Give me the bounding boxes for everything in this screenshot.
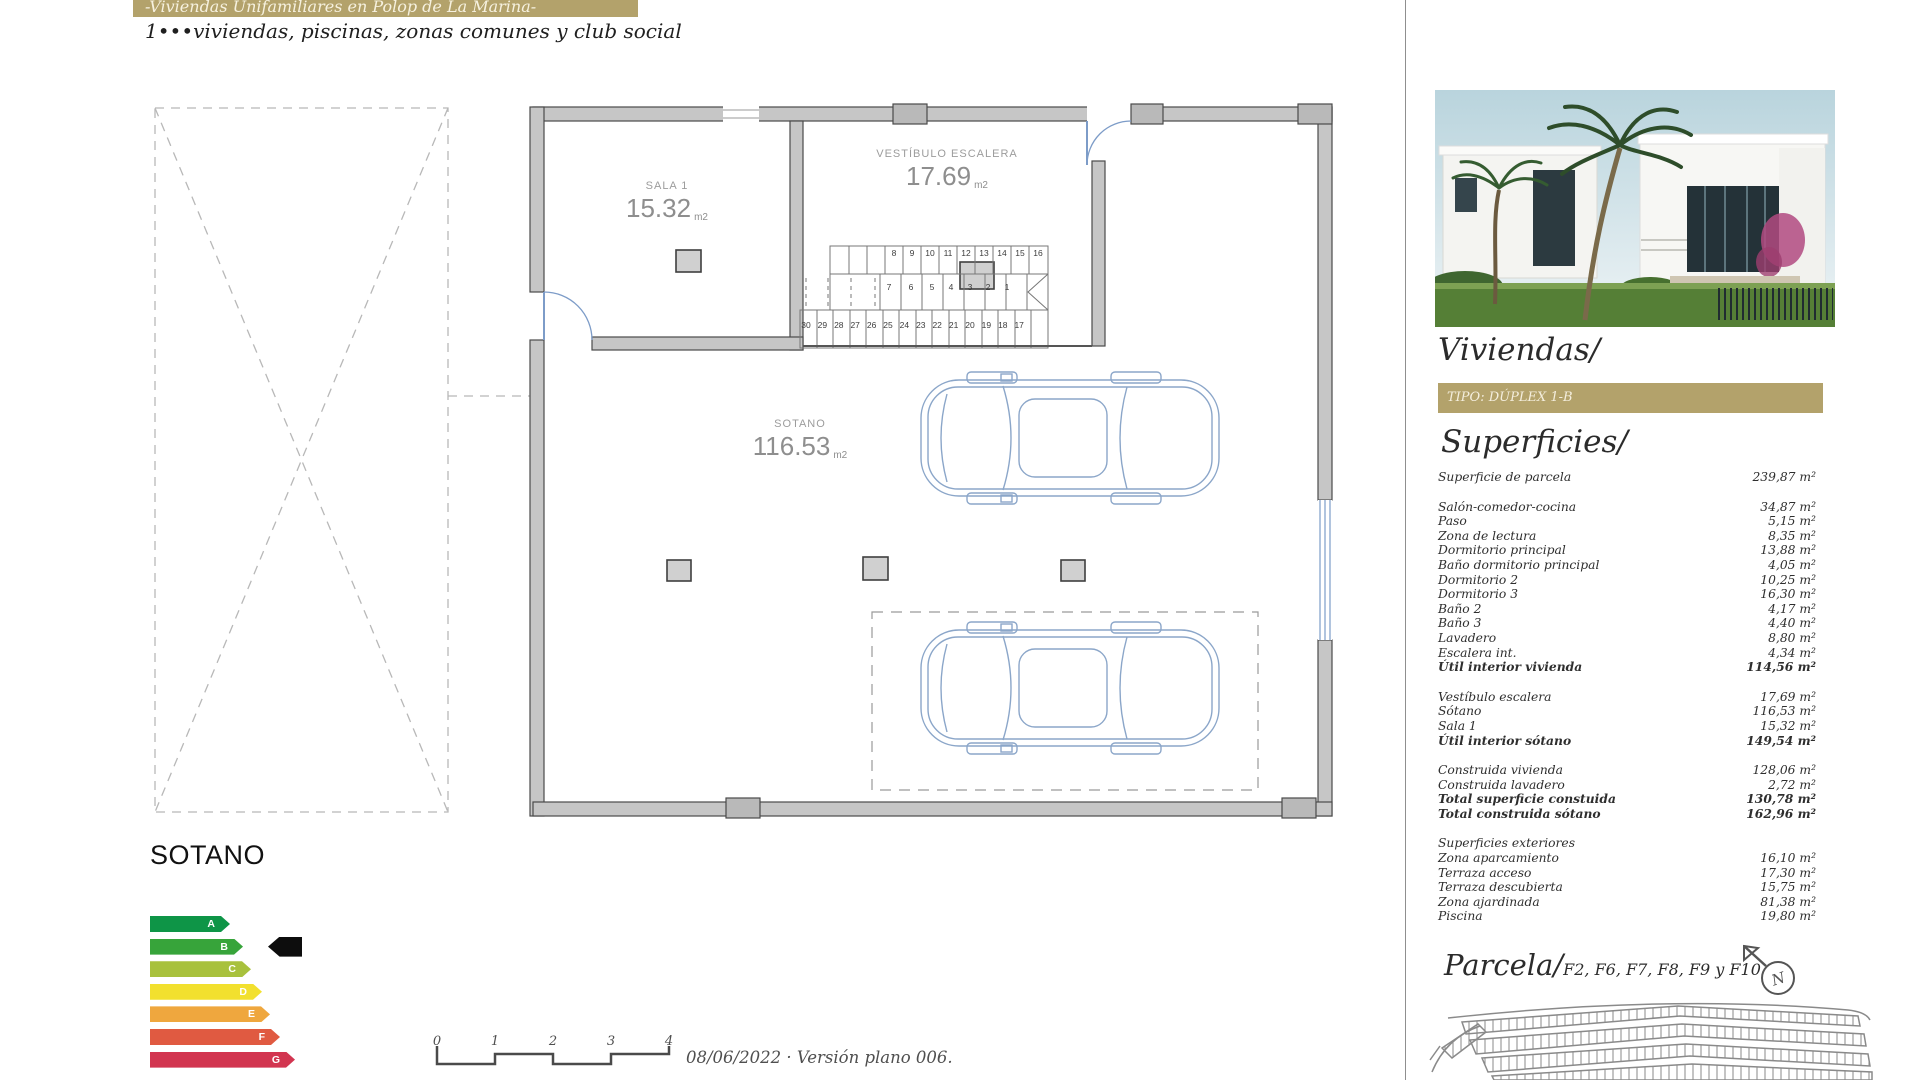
superficies-heading: Superficies/ [1441, 424, 1628, 460]
car-top-view-2 [921, 622, 1219, 754]
superficies-row: Baño 24,17 m² [1438, 602, 1816, 617]
superficies-value: 8,80 m² [1768, 631, 1816, 646]
superficies-row: Zona ajardinada81,38 m² [1438, 895, 1816, 910]
superficies-value: 130,78 m² [1746, 792, 1816, 807]
energy-letter: A [207, 916, 215, 932]
energy-rating-chart: ABCDEFG [150, 916, 410, 1080]
superficies-value: 4,17 m² [1768, 602, 1816, 617]
superficies-table: Superficie de parcela239,87 m²Salón-come… [1438, 470, 1816, 939]
superficies-label: Zona de lectura [1438, 529, 1536, 544]
render-photo [1435, 90, 1835, 327]
viviendas-heading: Viviendas/ [1438, 332, 1600, 368]
energy-letter: F [259, 1029, 265, 1045]
superficies-row: Escalera int.4,34 m² [1438, 646, 1816, 661]
superficies-label: Útil interior vivienda [1438, 660, 1582, 675]
energy-letter: B [220, 939, 228, 955]
render-photo-art [1435, 90, 1835, 327]
superficies-value: 8,35 m² [1768, 529, 1816, 544]
energy-letter: C [228, 961, 236, 977]
superficies-label: Lavadero [1438, 631, 1496, 646]
superficies-label: Sótano [1438, 704, 1481, 719]
superficies-row: Dormitorio principal13,88 m² [1438, 543, 1816, 558]
superficies-row: Terraza acceso17,30 m² [1438, 866, 1816, 881]
superficies-row: Dormitorio 210,25 m² [1438, 573, 1816, 588]
parcela-heading: Parcela/ [1444, 948, 1563, 982]
superficies-group: Vestíbulo escalera17,69 m²Sótano116,53 m… [1438, 690, 1816, 748]
superficies-value: 5,15 m² [1768, 514, 1816, 529]
superficies-value: 162,96 m² [1746, 807, 1816, 822]
superficies-row: Superficies exteriores [1438, 836, 1816, 851]
superficies-label: Superficies exteriores [1438, 836, 1575, 851]
superficies-value: 114,56 m² [1746, 660, 1816, 675]
project-title: -Viviendas Unifamiliares en Polop de La … [133, 0, 638, 17]
superficies-label: Baño 3 [1438, 616, 1481, 631]
superficies-label: Zona aparcamiento [1438, 851, 1559, 866]
energy-rating-pointer [268, 937, 302, 957]
superficies-value: 17,30 m² [1760, 866, 1816, 881]
superficies-label: Baño dormitorio principal [1438, 558, 1599, 573]
superficies-label: Zona ajardinada [1438, 895, 1540, 910]
tipo-banner: TIPO: DÚPLEX 1-B [1438, 383, 1823, 413]
superficies-value: 2,72 m² [1768, 778, 1816, 793]
superficies-label: Sala 1 [1438, 719, 1477, 734]
superficies-group: Construida vivienda128,06 m²Construida l… [1438, 763, 1816, 821]
superficies-row: Salón-comedor-cocina34,87 m² [1438, 500, 1816, 515]
energy-letter: E [248, 1006, 255, 1022]
superficies-label: Dormitorio principal [1438, 543, 1566, 558]
superficies-label: Piscina [1438, 909, 1483, 924]
energy-bar-G: G [150, 1052, 295, 1068]
superficies-label: Construida vivienda [1438, 763, 1563, 778]
superficies-value: 34,87 m² [1760, 500, 1816, 515]
superficies-value: 16,30 m² [1760, 587, 1816, 602]
superficies-label: Dormitorio 2 [1438, 573, 1518, 588]
superficies-value: 15,32 m² [1760, 719, 1816, 734]
doors-windows [544, 121, 1131, 340]
title-banner: -Viviendas Unifamiliares en Polop de La … [133, 0, 638, 17]
superficies-value: 15,75 m² [1760, 880, 1816, 895]
superficies-value: 149,54 m² [1746, 734, 1816, 749]
superficies-label: Vestíbulo escalera [1438, 690, 1551, 705]
superficies-row: Construida lavadero2,72 m² [1438, 778, 1816, 793]
parking-space-dashed [872, 612, 1258, 790]
superficies-label: Construida lavadero [1438, 778, 1565, 793]
staircase [800, 246, 1092, 348]
site-map-sketch [1428, 1002, 1873, 1080]
superficies-value: 4,05 m² [1768, 558, 1816, 573]
superficies-group: Superficies exterioresZona aparcamiento1… [1438, 836, 1816, 924]
superficies-label: Terraza descubierta [1438, 880, 1563, 895]
energy-letter: D [239, 984, 247, 1000]
superficies-value: 19,80 m² [1760, 909, 1816, 924]
superficies-row: Superficie de parcela239,87 m² [1438, 470, 1816, 485]
energy-bar-B: B [150, 939, 243, 955]
superficies-label: Escalera int. [1438, 646, 1517, 661]
superficies-row: Total superficie constuida130,78 m² [1438, 792, 1816, 807]
parcela-heading-row: Parcela/F2, F6, F7, F8, F9 y F10 [1444, 948, 1761, 982]
superficies-row: Útil interior vivienda114,56 m² [1438, 660, 1816, 675]
columns [667, 250, 1085, 581]
energy-bar-C: C [150, 961, 251, 977]
wall-pillars [726, 104, 1332, 818]
superficies-value: 4,34 m² [1768, 646, 1816, 661]
scale-bar [437, 1046, 669, 1064]
superficies-label: Total construida sótano [1438, 807, 1601, 822]
superficies-row: Baño 34,40 m² [1438, 616, 1816, 631]
superficies-row: Total construida sótano162,96 m² [1438, 807, 1816, 822]
superficies-row: Útil interior sótano149,54 m² [1438, 734, 1816, 749]
superficies-value: 81,38 m² [1760, 895, 1816, 910]
superficies-label: Salón-comedor-cocina [1438, 500, 1576, 515]
superficies-group: Salón-comedor-cocina34,87 m²Paso5,15 m²Z… [1438, 500, 1816, 675]
superficies-value: 239,87 m² [1752, 470, 1816, 485]
plan-sheet: -Viviendas Unifamiliares en Polop de La … [0, 0, 1920, 1080]
energy-bar-E: E [150, 1006, 270, 1022]
superficies-value: 128,06 m² [1752, 763, 1816, 778]
energy-bar-A: A [150, 916, 230, 932]
superficies-row: Terraza descubierta15,75 m² [1438, 880, 1816, 895]
dashed-zone [155, 108, 530, 812]
superficies-value: 116,53 m² [1752, 704, 1816, 719]
superficies-value: 17,69 m² [1760, 690, 1816, 705]
superficies-group: Superficie de parcela239,87 m² [1438, 470, 1816, 485]
superficies-label: Dormitorio 3 [1438, 587, 1518, 602]
superficies-label: Baño 2 [1438, 602, 1481, 617]
superficies-row: Vestíbulo escalera17,69 m² [1438, 690, 1816, 705]
superficies-row: Piscina19,80 m² [1438, 909, 1816, 924]
superficies-label: Terraza acceso [1438, 866, 1531, 881]
sidebar: Viviendas/ TIPO: DÚPLEX 1-B Superficies/… [1405, 0, 1920, 1080]
superficies-label: Paso [1438, 514, 1467, 529]
superficies-row: Dormitorio 316,30 m² [1438, 587, 1816, 602]
energy-bar-D: D [150, 984, 262, 1000]
energy-bar-F: F [150, 1029, 280, 1045]
superficies-row: Sótano116,53 m² [1438, 704, 1816, 719]
superficies-row: Sala 115,32 m² [1438, 719, 1816, 734]
superficies-label: Total superficie constuida [1438, 792, 1616, 807]
superficies-label: Útil interior sótano [1438, 734, 1571, 749]
superficies-label: Superficie de parcela [1438, 470, 1571, 485]
superficies-row: Baño dormitorio principal4,05 m² [1438, 558, 1816, 573]
project-subtitle: 1•••viviendas, piscinas, zonas comunes y… [145, 19, 682, 43]
superficies-value: 10,25 m² [1760, 573, 1816, 588]
parcela-codes: F2, F6, F7, F8, F9 y F10 [1563, 960, 1761, 979]
superficies-row: Paso5,15 m² [1438, 514, 1816, 529]
north-compass-icon: N [1736, 942, 1806, 1007]
superficies-row: Lavadero8,80 m² [1438, 631, 1816, 646]
svg-text:N: N [1768, 968, 1788, 990]
superficies-row: Construida vivienda128,06 m² [1438, 763, 1816, 778]
superficies-row: Zona aparcamiento16,10 m² [1438, 851, 1816, 866]
car-top-view-1 [921, 372, 1219, 504]
superficies-row: Zona de lectura8,35 m² [1438, 529, 1816, 544]
superficies-value: 4,40 m² [1768, 616, 1816, 631]
energy-letter: G [272, 1052, 280, 1068]
superficies-value: 13,88 m² [1760, 543, 1816, 558]
superficies-value: 16,10 m² [1760, 851, 1816, 866]
